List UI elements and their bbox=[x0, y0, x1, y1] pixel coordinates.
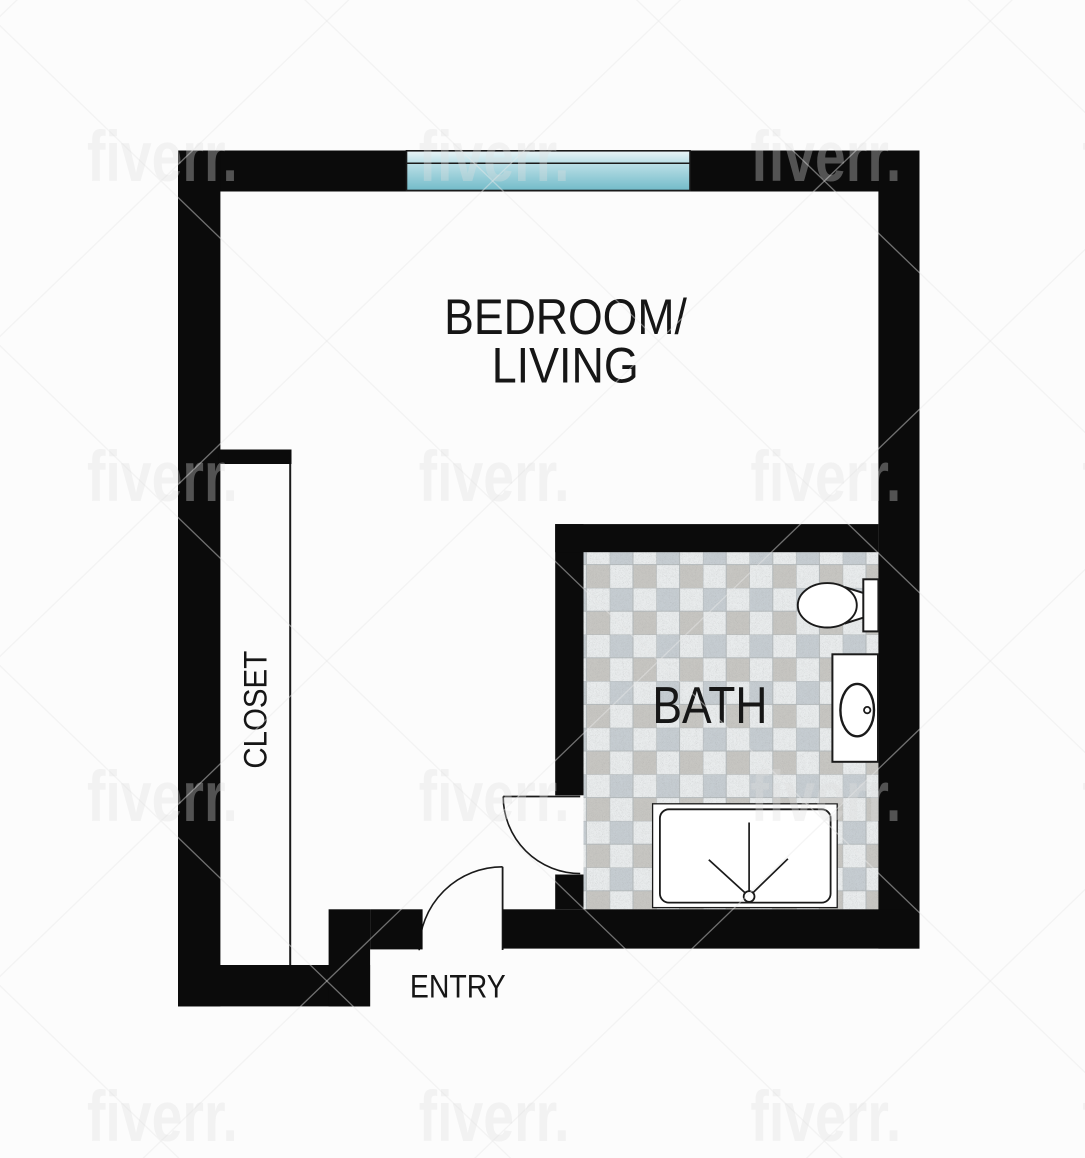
svg-text:fiverr.: fiverr. bbox=[419, 437, 570, 516]
svg-text:fiverr.: fiverr. bbox=[419, 117, 570, 196]
svg-text:fiverr.: fiverr. bbox=[87, 757, 238, 836]
svg-text:BEDROOM/: BEDROOM/ bbox=[444, 289, 688, 345]
svg-text:fiverr.: fiverr. bbox=[419, 757, 570, 836]
svg-text:LIVING: LIVING bbox=[492, 338, 639, 394]
svg-text:fiverr.: fiverr. bbox=[750, 1077, 901, 1156]
svg-text:BATH: BATH bbox=[652, 677, 767, 735]
svg-text:ENTRY: ENTRY bbox=[410, 970, 506, 1005]
svg-text:fiverr.: fiverr. bbox=[750, 757, 901, 836]
svg-text:fiverr.: fiverr. bbox=[87, 437, 238, 516]
svg-text:fiverr.: fiverr. bbox=[87, 117, 238, 196]
svg-text:CLOSET: CLOSET bbox=[237, 651, 273, 769]
svg-text:fiverr.: fiverr. bbox=[750, 117, 901, 196]
svg-text:fiverr.: fiverr. bbox=[750, 437, 901, 516]
svg-text:fiverr.: fiverr. bbox=[87, 1077, 238, 1156]
svg-text:fiverr.: fiverr. bbox=[419, 1077, 570, 1156]
